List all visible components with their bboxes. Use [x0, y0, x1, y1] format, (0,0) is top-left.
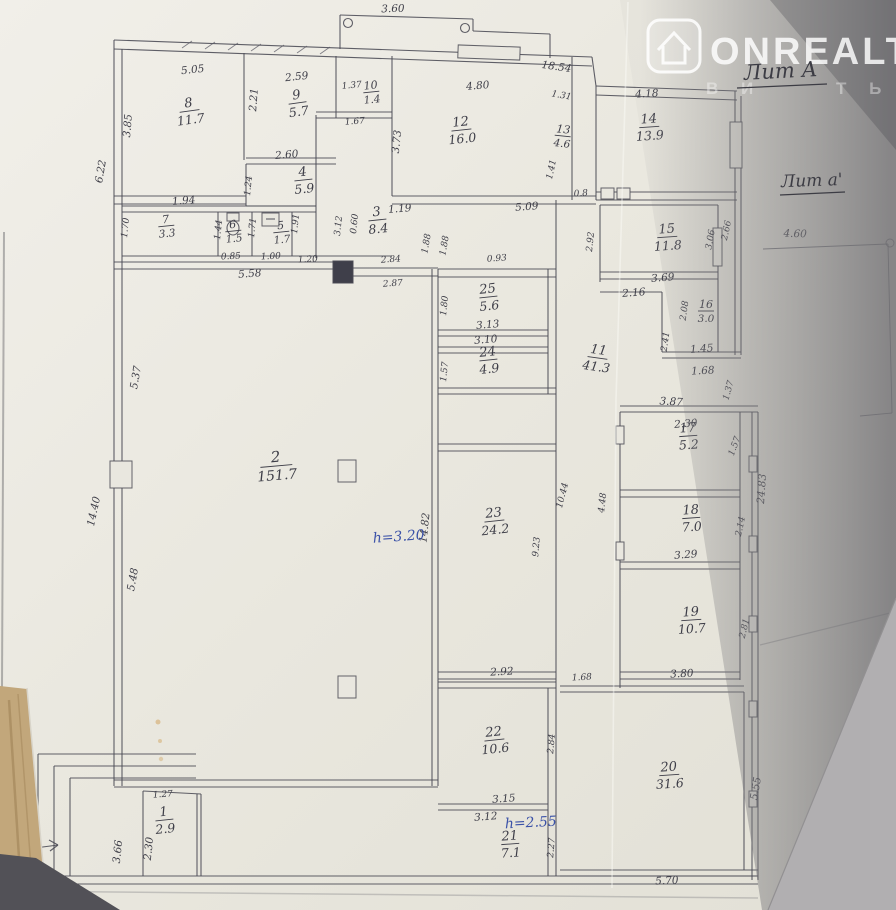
dim-label: 3.66	[111, 839, 125, 864]
room-number: 5	[276, 219, 284, 233]
room-number: 13	[556, 122, 571, 136]
room-area: 1.5	[225, 232, 243, 246]
room-number: 2	[269, 448, 281, 467]
room-number: 18	[682, 502, 700, 518]
dim-label: 1.94	[172, 194, 196, 208]
room-number: 6	[228, 218, 236, 232]
room-area: 2.9	[154, 820, 176, 837]
room-area: 5.6	[479, 297, 500, 314]
height-note-annex: h=2.55	[504, 814, 557, 833]
floor-plan-photo: 3.60 5.05 2.59 1.37 1.67 2.21 3.85 6.22 …	[0, 0, 896, 910]
room-area: 5.9	[294, 180, 315, 197]
room-area: 4.9	[478, 360, 500, 377]
room-number: 11	[589, 342, 607, 359]
dim-label: 3.15	[492, 792, 516, 806]
dim-label: 2.84	[380, 254, 402, 265]
dim-label: 1.68	[572, 672, 593, 683]
dim-label: 1.24	[243, 175, 255, 196]
dim-label: 3.87	[659, 395, 683, 408]
room-area: 31.6	[655, 775, 684, 792]
dim-label: 1.20	[298, 254, 319, 265]
dim-label: 1.70	[120, 217, 132, 238]
dim-label: 2.84	[546, 733, 558, 755]
dim-label: 2.30	[142, 836, 157, 862]
room-number: 25	[478, 281, 497, 298]
dim-label: 2.60	[274, 148, 300, 162]
dim-label: 5.58	[238, 267, 262, 281]
dim-label: 2.92	[489, 665, 514, 678]
dim-label: 4.80	[465, 79, 491, 93]
room-number: 24	[478, 344, 497, 361]
dim-label: 1.37	[341, 80, 362, 92]
room-number: 7	[161, 213, 169, 227]
room-number: 3	[372, 205, 382, 221]
dim-label: 3.73	[390, 129, 404, 154]
dim-label: 2.59	[283, 70, 309, 85]
dim-label: 5.70	[655, 874, 679, 887]
floor-plan-svg: 3.60 5.05 2.59 1.37 1.67 2.21 3.85 6.22 …	[0, 0, 896, 910]
dim-label: 0.8	[573, 188, 588, 199]
dim-label: 1.67	[345, 116, 366, 127]
dim-label: 1.71	[247, 217, 259, 238]
litera-main-text: Лит А	[742, 57, 818, 85]
room-number: 23	[484, 505, 503, 522]
dim-label: 9.23	[531, 536, 543, 557]
dim-label: 2.27	[546, 837, 558, 859]
dim-label: 3.29	[674, 548, 698, 562]
dim-label: 1.44	[213, 219, 225, 240]
room-area: 16.0	[448, 130, 477, 148]
dim-label: 5.05	[180, 63, 205, 77]
room-area: 10.7	[677, 620, 706, 637]
room-number: 1	[159, 805, 169, 821]
dim-label: 0.60	[349, 213, 361, 234]
room-area: 1.7	[273, 233, 291, 247]
dim-label: 2.16	[621, 286, 646, 300]
dim-label: 0.85	[221, 251, 242, 262]
dim-label: 0.93	[487, 253, 508, 264]
dim-label: 3.80	[670, 667, 694, 680]
dim-label: 3.60	[381, 3, 405, 16]
room-number: 20	[659, 759, 678, 775]
room-number: 12	[452, 114, 470, 131]
room-area: 1.4	[363, 93, 381, 107]
room-area: 3.3	[158, 227, 176, 241]
room-number: 4	[297, 165, 308, 181]
room-number: 22	[484, 724, 503, 741]
room-area: 8.4	[368, 220, 389, 237]
dim-label: 5.09	[515, 200, 539, 214]
dim-label: 1.27	[153, 789, 174, 800]
room-area: 4.6	[552, 137, 571, 151]
room-area: 7.0	[681, 518, 702, 534]
dim-label: 3.13	[476, 318, 501, 332]
watermark-sub-right: Т Ь	[836, 79, 890, 98]
dim-label: 3.85	[121, 113, 135, 138]
dim-label: 1.57	[439, 361, 451, 382]
room-area: 24.2	[480, 521, 510, 539]
room-area: 7.1	[500, 844, 521, 860]
room-number: 19	[682, 604, 700, 620]
room-area: 10.6	[481, 740, 510, 758]
litera-annex-text: Лит а'	[780, 170, 843, 192]
room-number: 10	[363, 78, 378, 92]
dim-label: 2.21	[247, 88, 261, 113]
dim-label: 2.87	[382, 278, 404, 289]
dim-label: 3.12	[474, 810, 498, 824]
dim-label: 1.00	[261, 251, 282, 262]
dim-label: 3.12	[333, 215, 345, 236]
dim-label: 1.19	[388, 202, 412, 216]
dim-label: 1.91	[290, 213, 302, 234]
room-area: 5.7	[288, 103, 310, 121]
dim-label: 1.80	[439, 295, 451, 316]
